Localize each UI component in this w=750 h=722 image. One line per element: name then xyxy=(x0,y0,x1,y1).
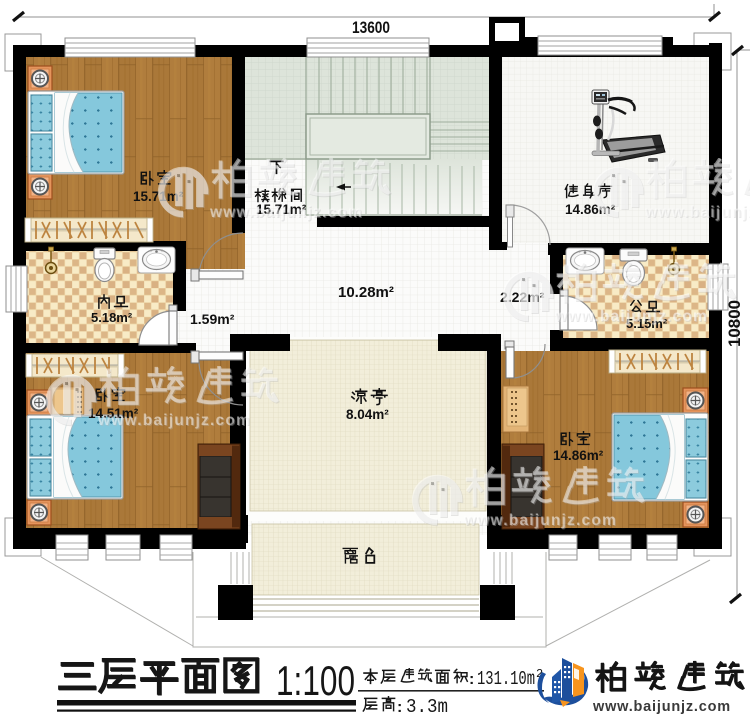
svg-text:14.86m²: 14.86m² xyxy=(553,448,604,463)
svg-text:1.59m²: 1.59m² xyxy=(190,311,235,327)
svg-text::: : xyxy=(469,671,474,688)
svg-text:5.18m²: 5.18m² xyxy=(91,310,133,325)
svg-text:8.04m²: 8.04m² xyxy=(346,407,389,422)
svg-text::: : xyxy=(397,699,402,716)
svg-text:1:100: 1:100 xyxy=(276,657,355,704)
svg-text:131.10m: 131.10m xyxy=(477,668,535,690)
svg-text:3.3m: 3.3m xyxy=(406,696,448,718)
svg-text:13600: 13600 xyxy=(352,18,390,37)
svg-text:www.baijunjz.com: www.baijunjz.com xyxy=(592,699,731,715)
svg-text:10.28m²: 10.28m² xyxy=(338,284,394,301)
